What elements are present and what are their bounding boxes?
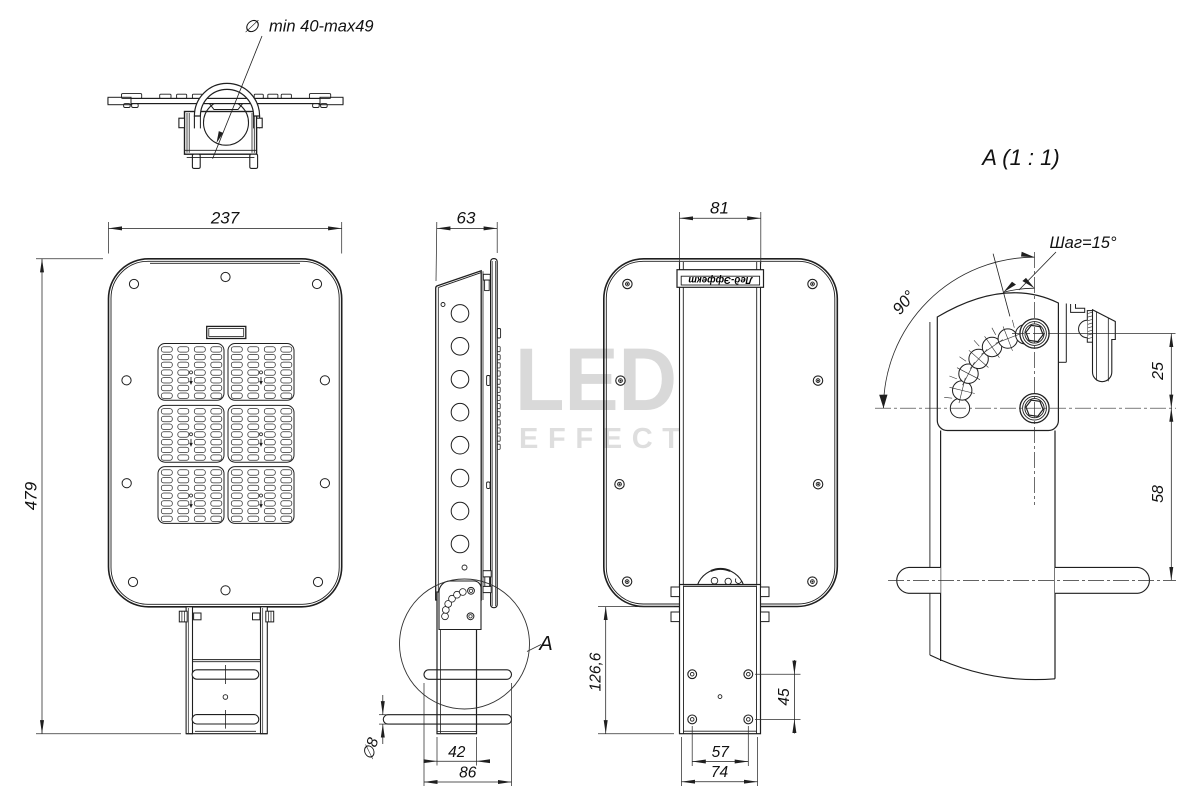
svg-text:A: A (538, 633, 552, 655)
svg-text:81: 81 (710, 199, 729, 218)
svg-text:58: 58 (1150, 485, 1167, 503)
svg-text:63: 63 (457, 209, 476, 228)
svg-text:25: 25 (1150, 362, 1167, 381)
svg-text:min 40-max49: min 40-max49 (269, 18, 374, 36)
svg-text:126,6: 126,6 (588, 652, 605, 691)
svg-text:86: 86 (459, 765, 477, 782)
svg-text:∅: ∅ (244, 17, 260, 36)
svg-text:57: 57 (712, 744, 731, 761)
svg-text:Шаг=15°: Шаг=15° (1049, 234, 1116, 252)
svg-text:237: 237 (210, 209, 240, 228)
svg-text:74: 74 (711, 764, 729, 781)
svg-text:LED: LED (515, 329, 677, 429)
svg-text:Лед-Эффект: Лед-Эффект (688, 274, 753, 286)
svg-text:479: 479 (22, 481, 41, 510)
svg-text:42: 42 (448, 744, 466, 761)
svg-text:A (1 : 1): A (1 : 1) (980, 145, 1059, 170)
svg-text:45: 45 (776, 688, 793, 706)
